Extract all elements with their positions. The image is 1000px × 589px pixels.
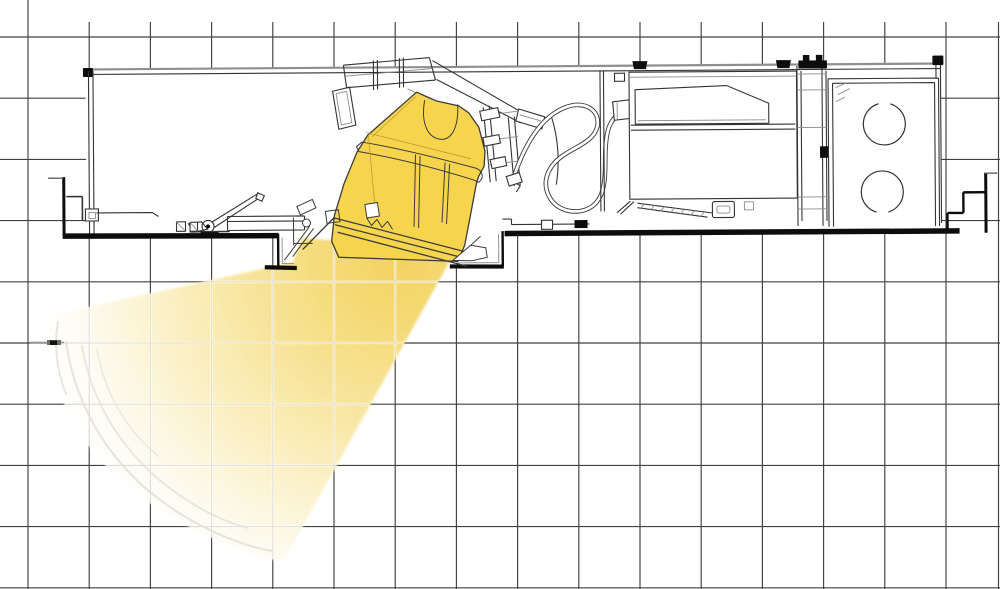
trim-tab — [541, 220, 552, 229]
top-clip-right — [776, 60, 791, 68]
ceiling-line-right — [505, 230, 960, 234]
housing-fill — [85, 64, 941, 236]
ceiling-line-left — [63, 235, 279, 238]
housing-corner-right — [932, 56, 943, 66]
cable-clamp — [614, 73, 624, 81]
raceway-latch — [820, 146, 829, 158]
diagram-canvas — [0, 0, 1000, 589]
trim-hatch-tab — [574, 220, 587, 228]
luminaire-cross-section-diagram — [0, 0, 1000, 589]
top-clip-left — [632, 61, 647, 69]
wall-bracket-right — [947, 173, 997, 233]
raceway-cap — [798, 60, 827, 68]
junction-box — [600, 60, 798, 218]
end-compartment — [828, 78, 940, 227]
junction-box-body — [629, 71, 797, 199]
